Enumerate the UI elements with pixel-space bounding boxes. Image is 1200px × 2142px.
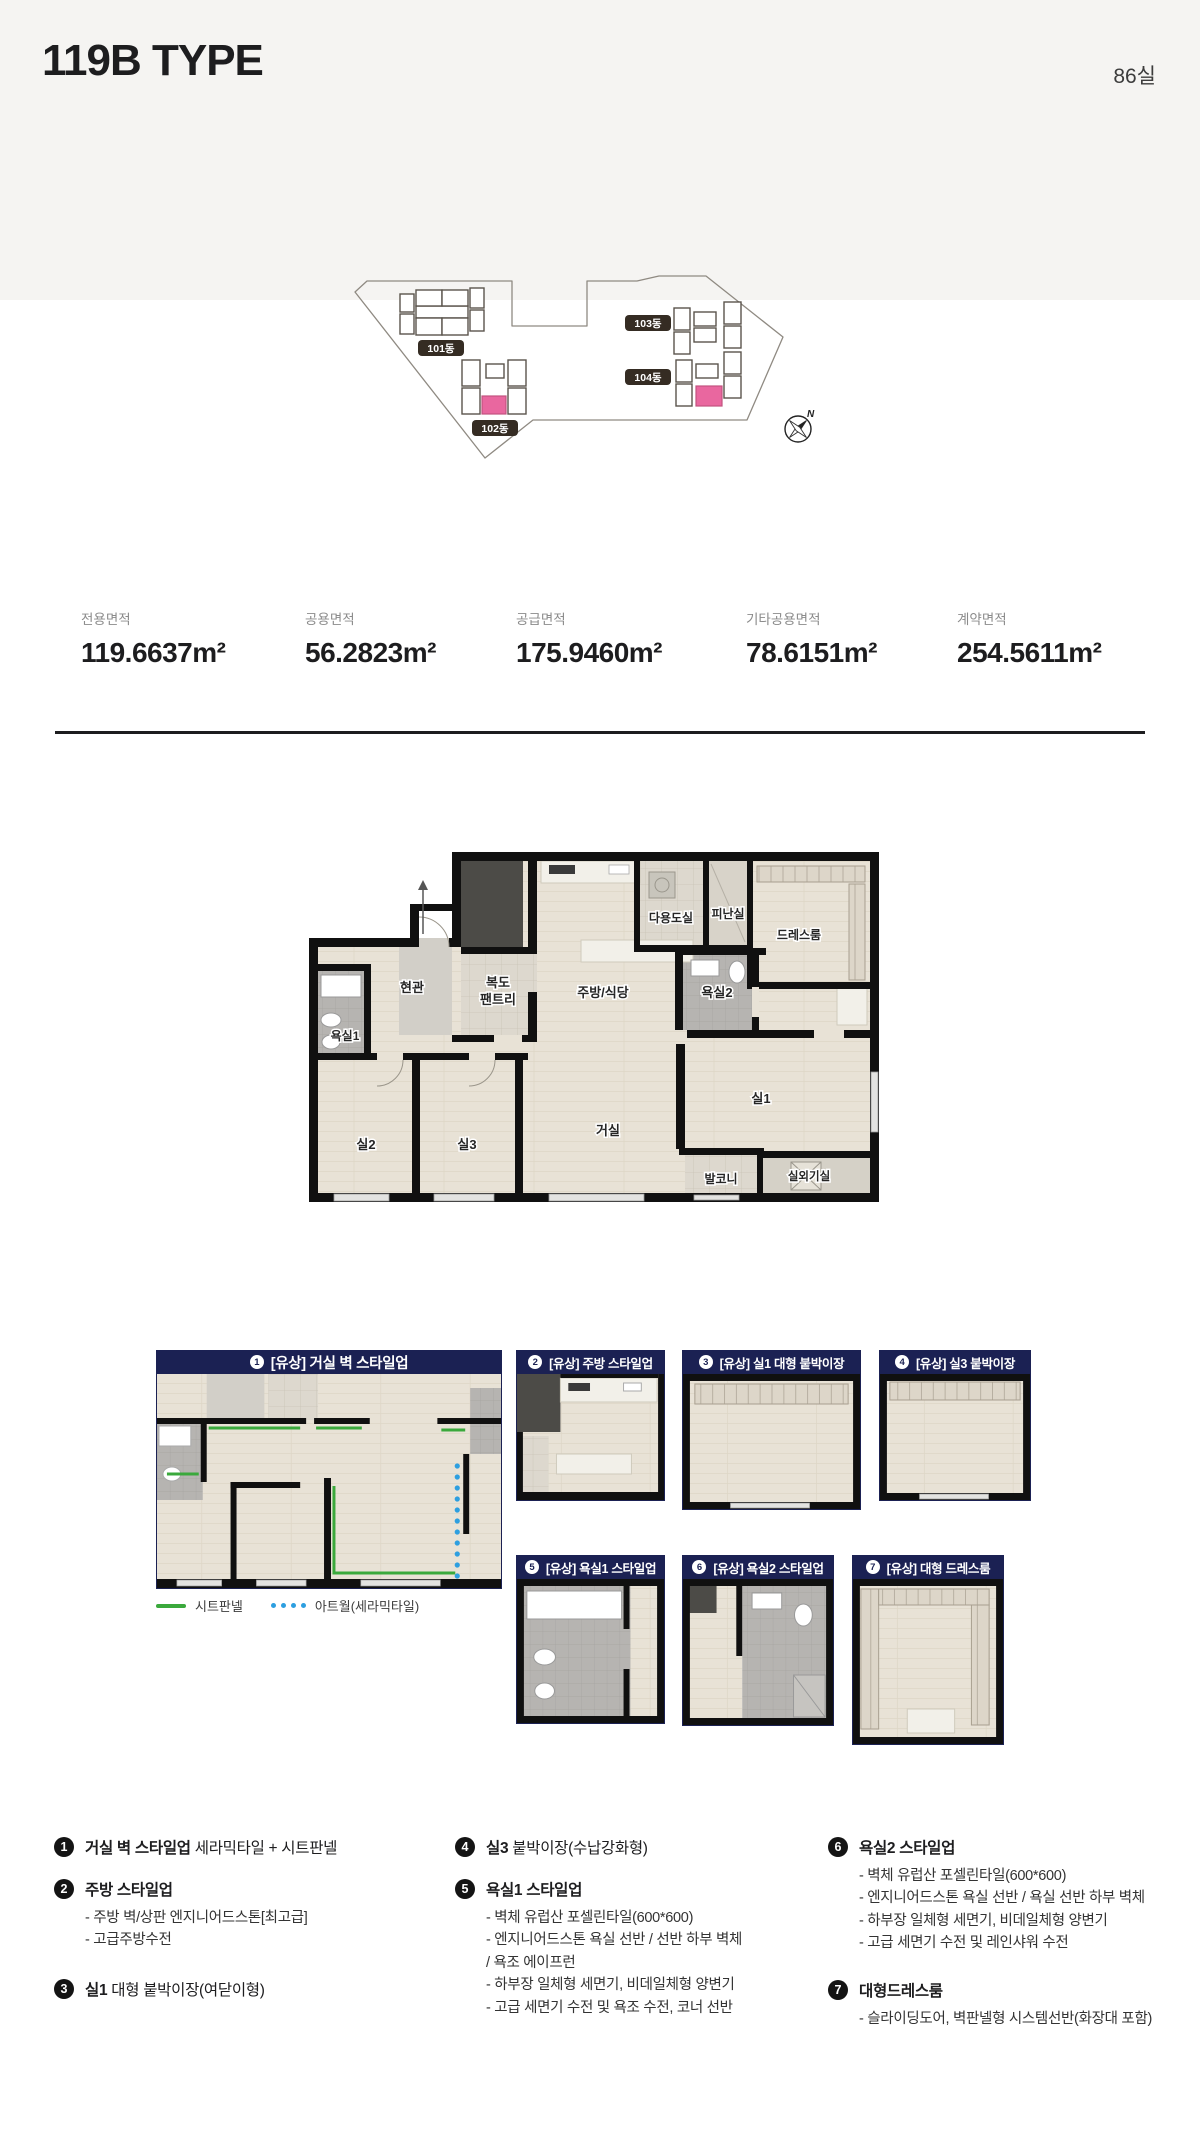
option-panel-3-header: 3 [유상] 실1 대형 붙박이장 — [682, 1350, 861, 1374]
stat-other-common-area: 기타공용면적 78.6151m² — [746, 608, 877, 669]
dress-wardrobe-right — [849, 884, 865, 980]
label-entrance: 현관 — [400, 980, 424, 995]
page-title: 119B TYPE — [42, 36, 263, 86]
option-3-plan-image — [683, 1374, 860, 1509]
cooktop — [549, 865, 575, 874]
option-panel-6-header: 6 [유상] 욕실2 스타일업 — [682, 1555, 834, 1579]
label-refuge: 피난실 — [711, 906, 744, 921]
option-panel-6: 6 [유상] 욕실2 스타일업 — [682, 1555, 834, 1726]
option-panel-7: 7 [유상] 대형 드레스룸 — [852, 1555, 1004, 1745]
legend-artwall-label: 아트월(세라믹타일) — [315, 1596, 419, 1615]
detail-line: / 욕조 에이프런 — [486, 1952, 742, 1974]
detail-line: - 엔지니어드스톤 욕실 선반 / 선반 하부 벽체 — [486, 1929, 742, 1951]
option-panel-5: 5 [유상] 욕실1 스타일업 — [516, 1555, 665, 1724]
legend-line-swatch — [156, 1604, 186, 1608]
washer — [649, 872, 675, 898]
option-4-title: [유상] 실3 붙박이장 — [916, 1353, 1015, 1372]
option-1-plan-image — [157, 1374, 501, 1588]
option-2-number: 2 — [528, 1355, 542, 1369]
detail-7-badge: 7 — [828, 1980, 848, 2000]
label-bath2: 욕실2 — [701, 985, 732, 1000]
option-6-number: 6 — [692, 1560, 706, 1574]
option-panel-3: 3 [유상] 실1 대형 붙박이장 — [682, 1350, 861, 1510]
detail-5-badge: 5 — [455, 1879, 475, 1899]
option-panel-2: 2 [유상] 주방 스타일업 — [516, 1350, 665, 1501]
detail-item-4: 4 실3 붙박이장(수납강화형) — [455, 1836, 815, 1858]
option-panel-4-header: 4 [유상] 실3 붙박이장 — [879, 1350, 1031, 1374]
bath1-sink — [321, 1013, 341, 1027]
dress-wardrobe-top — [757, 866, 865, 882]
badge-102-label: 102동 — [481, 423, 509, 435]
detail-item-7: 7 대형드레스룸 - 슬라이딩도어, 벽판넬형 시스템선반(화장대 포함) — [828, 1979, 1188, 2030]
detail-6-badge: 6 — [828, 1837, 848, 1857]
label-living: 거실 — [596, 1123, 620, 1138]
detail-line: - 슬라이딩도어, 벽판넬형 시스템선반(화장대 포함) — [859, 2008, 1152, 2030]
shaft-room — [461, 861, 523, 947]
legend-dots-swatch — [271, 1603, 306, 1608]
building-103 — [674, 302, 741, 354]
badge-104-label: 104동 — [634, 372, 662, 384]
plan-legend: 시트판넬 아트월(세라믹타일) — [156, 1596, 419, 1615]
option-panel-5-header: 5 [유상] 욕실1 스타일업 — [516, 1555, 665, 1579]
floor-base — [313, 856, 875, 1198]
option-panel-1: 1 [유상] 거실 벽 스타일업 — [156, 1350, 502, 1589]
bath2-toilet — [729, 961, 745, 983]
details-column-3: 6 욕실2 스타일업 - 벽체 유럽산 포셀린타일(600*600) - 엔지니… — [828, 1836, 1188, 2050]
option-5-title: [유상] 욕실1 스타일업 — [546, 1558, 656, 1577]
stat-contract-area: 계약면적 254.5611m² — [957, 608, 1101, 669]
stat-exclusive-area: 전용면적 119.6637m² — [81, 608, 225, 669]
option-7-plan-image — [853, 1579, 1003, 1744]
option-panel-7-header: 7 [유상] 대형 드레스룸 — [852, 1555, 1004, 1579]
detail-item-2: 2 주방 스타일업 - 주방 벽/상판 엔지니어드스톤[최고급] - 고급주방수… — [54, 1878, 424, 1952]
option-6-title: [유상] 욕실2 스타일업 — [713, 1558, 823, 1577]
label-corridor: 복도 — [486, 975, 510, 990]
highlighted-unit-102 — [482, 396, 506, 414]
label-kitchen: 주방/식당 — [577, 985, 628, 1000]
detail-line: - 벽체 유럽산 포셀린타일(600*600) — [859, 1865, 1145, 1887]
detail-line: - 엔지니어드스톤 욕실 선반 / 욕실 선반 하부 벽체 — [859, 1887, 1145, 1909]
option-3-number: 3 — [699, 1355, 713, 1369]
option-4-plan-image — [880, 1374, 1030, 1500]
area-stats: 전용면적 119.6637m² 공용면적 56.2823m² 공급면적 175.… — [0, 608, 1200, 678]
option-1-number: 1 — [250, 1355, 264, 1369]
detail-3-badge: 3 — [54, 1979, 74, 1999]
detail-line: - 벽체 유럽산 포셀린타일(600*600) — [486, 1907, 742, 1929]
option-panel-2-header: 2 [유상] 주방 스타일업 — [516, 1350, 665, 1374]
stat-supply-area: 공급면적 175.9460m² — [516, 608, 662, 669]
unit-count: 86실 — [1113, 60, 1156, 90]
legend-artwall: 아트월(세라믹타일) — [271, 1596, 419, 1615]
label-room2: 실2 — [356, 1137, 375, 1152]
option-5-plan-image — [517, 1579, 664, 1723]
details-column-2: 4 실3 붙박이장(수납강화형) 5 욕실1 스타일업 - 벽체 유럽산 포셀린… — [455, 1836, 815, 2039]
detail-line: - 고급 세면기 수전 및 레인샤워 수전 — [859, 1932, 1145, 1954]
detail-item-3: 3 실1 대형 붙박이장(여닫이형) — [54, 1978, 424, 2000]
label-pantry: 팬트리 — [480, 992, 516, 1007]
details-column-1: 1 거실 벽 스타일업 세라믹타일 + 시트판넬 2 주방 스타일업 - 주방 … — [54, 1836, 424, 2020]
option-7-title: [유상] 대형 드레스룸 — [887, 1558, 991, 1577]
building-101 — [400, 288, 484, 335]
badge-103-label: 103동 — [634, 318, 662, 330]
option-2-plan-image — [517, 1374, 664, 1500]
option-2-title: [유상] 주방 스타일업 — [549, 1353, 653, 1372]
builtin-closet — [837, 987, 867, 1025]
option-4-number: 4 — [895, 1355, 909, 1369]
option-panel-4: 4 [유상] 실3 붙박이장 — [879, 1350, 1031, 1501]
detail-1-badge: 1 — [54, 1837, 74, 1857]
detail-item-5: 5 욕실1 스타일업 - 벽체 유럽산 포셀린타일(600*600) - 엔지니… — [455, 1878, 815, 2019]
option-7-number: 7 — [866, 1560, 880, 1574]
badge-101-label: 101동 — [427, 343, 455, 355]
section-divider — [55, 731, 1145, 734]
detail-line: - 하부장 일체형 세면기, 비데일체형 양변기 — [486, 1974, 742, 1996]
highlighted-unit-104 — [696, 386, 722, 406]
detail-item-6: 6 욕실2 스타일업 - 벽체 유럽산 포셀린타일(600*600) - 엔지니… — [828, 1836, 1188, 1955]
detail-item-1: 1 거실 벽 스타일업 세라믹타일 + 시트판넬 — [54, 1836, 424, 1858]
detail-line: - 하부장 일체형 세면기, 비데일체형 양변기 — [859, 1910, 1145, 1932]
floor-plan: 현관 복도 팬트리 주방/식당 다용도실 피난실 드레스룸 욕실2 욕실1 실2… — [309, 852, 879, 1202]
label-room3: 실3 — [457, 1137, 476, 1152]
label-room1: 실1 — [751, 1091, 770, 1106]
bathtub — [321, 975, 361, 997]
detail-2-badge: 2 — [54, 1879, 74, 1899]
compass-north-label: N — [807, 409, 815, 420]
bath2-sink — [691, 960, 719, 976]
detail-line: - 주방 벽/상판 엔지니어드스톤[최고급] — [85, 1907, 308, 1929]
legend-sheet-panel: 시트판넬 — [156, 1596, 243, 1615]
compass-icon: N — [785, 409, 815, 442]
label-outdoor-unit: 실외기실 — [788, 1169, 830, 1183]
page: 119B TYPE 86실 — [0, 0, 1200, 2142]
legend-sheet-panel-label: 시트판넬 — [195, 1596, 243, 1615]
option-5-number: 5 — [525, 1560, 539, 1574]
kitchen-sink — [609, 865, 629, 874]
stat-common-area: 공용면적 56.2823m² — [305, 608, 436, 669]
site-plan: 101동 102동 103동 104동 N — [340, 268, 885, 468]
detail-4-badge: 4 — [455, 1837, 475, 1857]
option-1-title: [유상] 거실 벽 스타일업 — [271, 1352, 409, 1373]
option-6-plan-image — [683, 1579, 833, 1725]
label-balcony: 발코니 — [704, 1171, 737, 1186]
option-panel-1-header: 1 [유상] 거실 벽 스타일업 — [156, 1350, 502, 1374]
detail-line: - 고급주방수전 — [85, 1929, 308, 1951]
label-utility: 다용도실 — [649, 910, 693, 925]
detail-line: - 고급 세면기 수전 및 욕조 수전, 코너 선반 — [486, 1997, 742, 2019]
label-dressroom: 드레스룸 — [777, 927, 821, 942]
label-bath1: 욕실1 — [331, 1028, 360, 1043]
option-3-title: [유상] 실1 대형 붙박이장 — [720, 1353, 845, 1372]
